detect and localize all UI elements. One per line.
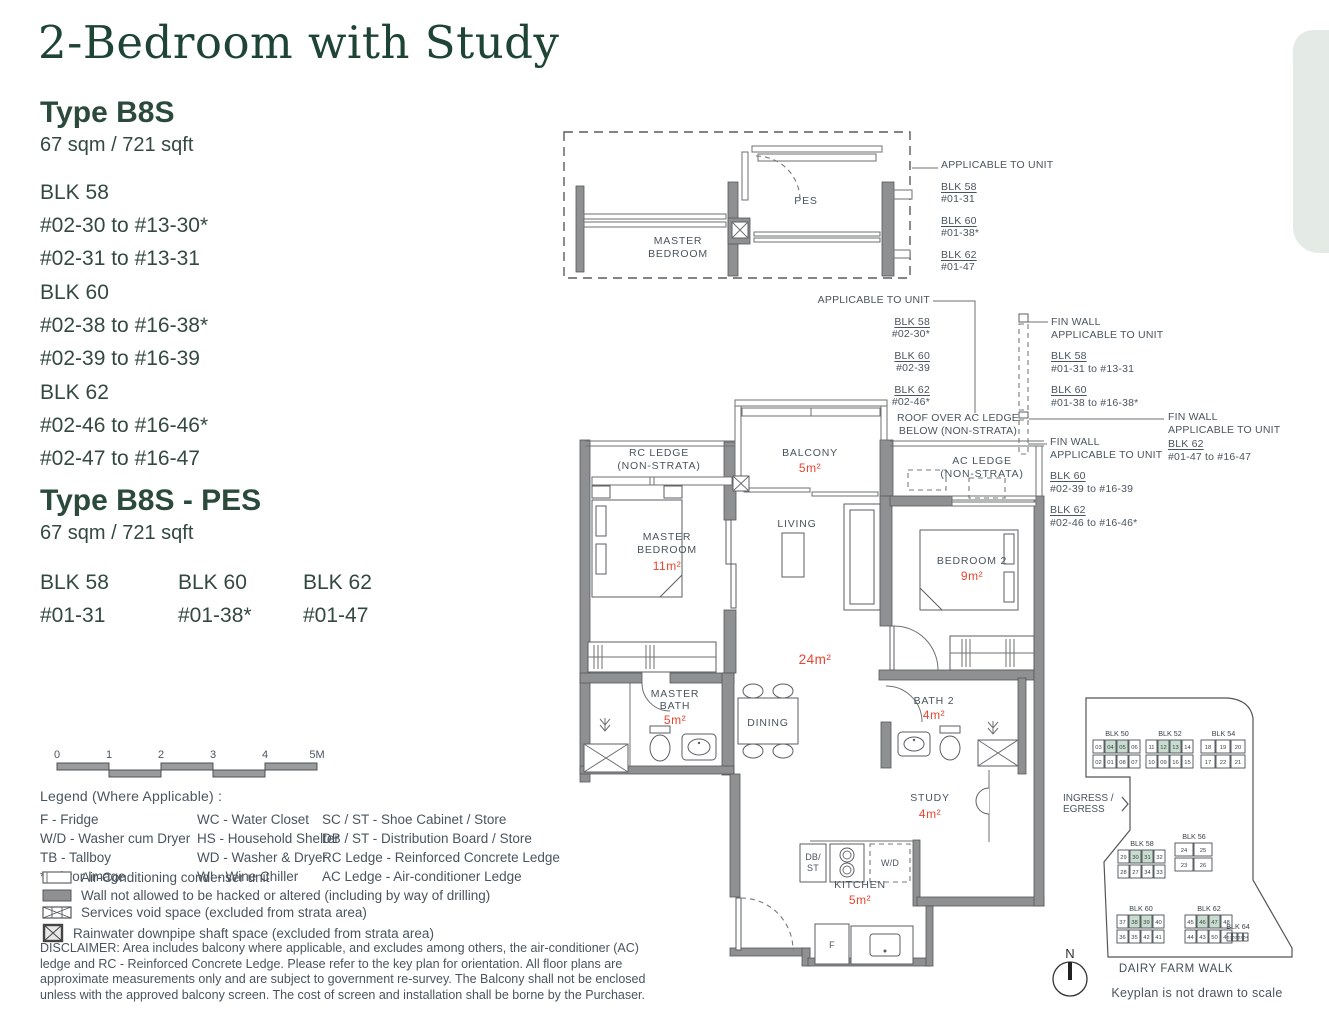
keyplan-unit-number: 20 (1235, 745, 1241, 751)
keyplan-unit-number: 14 (1184, 745, 1191, 751)
keyplan-unit-number: 34 (1144, 870, 1151, 876)
annotation-subtitle: APPLICABLE TO UNIT (1168, 424, 1280, 437)
keyplan-unit-number: 17 (1205, 760, 1211, 766)
rc-ledge-label: RC LEDGE (629, 447, 689, 459)
scale-tick: 0 (54, 749, 60, 761)
toilet-icon (650, 726, 670, 761)
keyplan-unit-number: 25 (1200, 848, 1206, 854)
keyplan-unit-number: 07 (1131, 760, 1137, 766)
keyplan-unit-number: 36 (1119, 935, 1125, 941)
pes-label: PES (794, 195, 817, 207)
legend-item: RC Ledge - Reinforced Concrete Ledge (322, 848, 560, 867)
door-swing-arc (894, 626, 938, 670)
toilet-icon (940, 726, 960, 760)
db-st-label: DB/ (805, 852, 821, 862)
keyplan-unit-number: 12 (1160, 745, 1166, 751)
keyplan: BLK 500304050602010807BLK 52111213141009… (1053, 698, 1292, 1000)
scale-bar: 0 1 2 3 4 5M (54, 749, 325, 777)
keyplan-unit-number: 30 (1132, 855, 1138, 861)
keyplan-blocks: BLK 500304050602010807BLK 52111213141009… (1093, 729, 1250, 943)
annotation-unit: #02-39 (790, 362, 930, 375)
keyplan-unit-number: 50 (1211, 935, 1217, 941)
keyplan-unit-number: 52 (1233, 935, 1237, 939)
sink-icon (851, 926, 913, 964)
annotation-blk: BLK 58 (1051, 350, 1163, 363)
study-fixtures (976, 770, 989, 842)
roof-over-line: ROOF OVER AC LEDGE (896, 412, 1020, 425)
legend-item: SC / ST - Shoe Cabinet / Store (322, 810, 560, 829)
keyplan-unit-number: 01 (1107, 760, 1113, 766)
master-bath-area: 5m² (664, 713, 686, 727)
dining-label: DINING (747, 717, 789, 729)
annotation-unit: #01-38* (941, 227, 1053, 240)
keyplan-unit-number: 16 (1172, 760, 1178, 766)
roof-over-line: BELOW (NON-STRATA) (896, 425, 1020, 438)
annotation-unit: #02-39 to #16-39 (1050, 483, 1162, 496)
entry-door-leaf (736, 898, 741, 950)
legend-item: HS - Household Shelter (197, 829, 339, 848)
keyplan-block-label: BLK 60 (1129, 904, 1153, 913)
annotation-unit: #01-31 to #13-31 (1051, 363, 1163, 376)
pes-master-bedroom-label: MASTER (654, 235, 703, 247)
bedroom2-wardrobe (950, 636, 1034, 670)
fin-wall-symbol (1019, 314, 1028, 454)
keyplan-unit-number: 43 (1199, 935, 1205, 941)
keyplan-unit-number: 41 (1155, 935, 1161, 941)
services-void-symbol-icon (42, 906, 72, 919)
keyplan-unit-number: 15 (1184, 760, 1190, 766)
keyplan-block-label: BLK 64 (1226, 922, 1250, 931)
sliding-door (726, 520, 731, 564)
annotation-blk: BLK 62 (1168, 438, 1280, 451)
street-label: DAIRY FARM WALK (1119, 963, 1233, 975)
annotation-unit: #02-30* (790, 328, 930, 341)
annotation-subtitle: APPLICABLE TO UNIT (1050, 449, 1162, 462)
annotation-subtitle: APPLICABLE TO UNIT (1051, 329, 1163, 342)
master-bedroom-area: 11m² (653, 559, 681, 573)
keyplan-unit-number: 11 (1148, 745, 1154, 751)
keyplan-unit-number: 32 (1156, 855, 1162, 861)
keyplan-unit-number: 33 (1156, 870, 1162, 876)
keyplan-unit-number: 51 (1227, 935, 1231, 939)
keyplan-unit-number: 18 (1205, 745, 1211, 751)
annotation-unit: #01-38 to #16-38* (1051, 397, 1163, 410)
legend-symbol-label: Rainwater downpipe shaft space (excluded… (73, 926, 434, 941)
roof-applicable-annotation: APPLICABLE TO UNIT BLK 58 #02-30* BLK 60… (790, 294, 930, 409)
keyplan-unit-number: 54 (1244, 935, 1248, 939)
keyplan-unit-number: 46 (1199, 920, 1205, 926)
rc-ledge-label: (NON-STRATA) (617, 460, 700, 472)
annotation-title: APPLICABLE TO UNIT (941, 159, 1053, 172)
keyplan-unit-number: 44 (1187, 935, 1194, 941)
legend-symbol-row: Services void space (excluded from strat… (42, 905, 367, 920)
entry-door-swing-arc (741, 898, 793, 950)
annotation-title: FIN WALL (1168, 411, 1280, 424)
keyplan-unit-number: 06 (1131, 745, 1137, 751)
keyplan-block-label: BLK 56 (1182, 832, 1206, 841)
study-chair-arc (976, 788, 989, 814)
annotation-unit: #01-47 to #16-47 (1168, 451, 1280, 464)
legend-symbol-label: Wall not allowed to be hacked or altered… (81, 888, 490, 903)
north-label: N (1065, 946, 1074, 961)
ac-condenser-symbol-icon (42, 871, 72, 884)
legend-item: WC - Water Closet (197, 810, 339, 829)
ac-ledge-label: (NON-STRATA) (940, 468, 1023, 480)
basin-icon (682, 734, 716, 760)
keyplan-unit-number: 39 (1143, 920, 1149, 926)
annotation-unit: #01-47 (941, 261, 1053, 274)
bedroom2-label: BEDROOM 2 (937, 555, 1007, 567)
wall-symbol-icon (42, 889, 72, 902)
ac-condenser-icon (969, 478, 1005, 498)
sofa (844, 504, 880, 610)
keyplan-unit-number: 47 (1211, 920, 1217, 926)
master-bedroom-label: BEDROOM (637, 544, 697, 556)
kitchen-area: 5m² (849, 893, 871, 907)
study-label: STUDY (910, 792, 950, 804)
ingress-arrow-icon (1122, 797, 1128, 811)
scale-tick: 3 (210, 749, 216, 761)
rainwater-shaft-symbol-icon (42, 923, 64, 943)
master-wardrobe (588, 642, 716, 672)
keyplan-unit-number: 26 (1200, 863, 1206, 869)
bedroom2-area: 9m² (961, 569, 983, 583)
keyplan-unit-number: 19 (1220, 745, 1226, 751)
fridge-label: F (829, 940, 835, 950)
annotation-blk: BLK 60 (941, 215, 1053, 228)
keyplan-block-label: BLK 62 (1197, 904, 1221, 913)
legend-symbol-label: Air-Conditioning condenser unit (81, 870, 269, 885)
wd-label: W/D (881, 858, 899, 868)
annotation-unit: #02-46 to #16-46* (1050, 517, 1162, 530)
keyplan-unit-number: 31 (1144, 855, 1150, 861)
fin-wall-mid-annotation: FIN WALL APPLICABLE TO UNIT BLK 60 #02-3… (1050, 436, 1162, 529)
legend-symbol-row: Air-Conditioning condenser unit (42, 870, 269, 885)
keyplan-unit-number: 28 (1120, 870, 1126, 876)
keyplan-unit-number: 22 (1220, 760, 1226, 766)
services-void-icon (584, 744, 628, 772)
legend-symbol-label: Services void space (excluded from strat… (81, 905, 367, 920)
scale-tick: 1 (106, 749, 112, 761)
keyplan-unit-number: 27 (1132, 870, 1138, 876)
keyplan-unit-number: 24 (1181, 848, 1188, 854)
balcony-label: BALCONY (782, 447, 838, 459)
ingress-egress: INGRESS / EGRESS (1063, 793, 1128, 815)
keyplan-unit-number: 04 (1107, 745, 1114, 751)
master-bath-label: MASTER (651, 688, 700, 700)
annotation-unit: #01-31 (941, 193, 1053, 206)
keyplan-unit-number: 53 (1238, 935, 1242, 939)
keyplan-block-label: BLK 54 (1212, 729, 1236, 738)
keyplan-unit-number: 10 (1148, 760, 1154, 766)
keyplan-block-label: BLK 52 (1158, 729, 1182, 738)
coffee-table (782, 533, 804, 577)
annotation-blk: BLK 62 (941, 249, 1053, 262)
scale-tick: 2 (158, 749, 164, 761)
keyplan-note: Keyplan is not drawn to scale (1111, 986, 1282, 1000)
keyplan-unit-number: 45 (1187, 920, 1193, 926)
north-arrow-icon: N (1053, 946, 1087, 996)
annotation-blk: BLK 62 (1050, 504, 1162, 517)
legend-item: F - Fridge (40, 810, 190, 829)
hob-icon (830, 844, 864, 882)
keyplan-unit-number: 37 (1119, 920, 1125, 926)
study-area: 4m² (919, 807, 941, 821)
disclaimer-text: DISCLAIMER: Area includes balcony where … (40, 941, 646, 1003)
keyplan-unit-number: 23 (1181, 863, 1187, 869)
master-bath-label: BATH (660, 700, 690, 712)
fin-wall-right-annotation: FIN WALL APPLICABLE TO UNIT BLK 62 #01-4… (1168, 411, 1280, 463)
master-bedroom-label: MASTER (643, 531, 692, 543)
annotation-title: FIN WALL (1051, 316, 1163, 329)
keyplan-unit-number: 02 (1095, 760, 1101, 766)
ingress-label: EGRESS (1063, 804, 1105, 815)
keyplan-unit-number: 05 (1119, 745, 1125, 751)
roof-over-annotation: ROOF OVER AC LEDGE BELOW (NON-STRATA) (896, 412, 1020, 437)
legend-item: TB - Tallboy (40, 848, 190, 867)
scale-tick: 4 (262, 749, 268, 761)
keyplan-unit-number: 40 (1155, 920, 1161, 926)
balcony-area: 5m² (799, 461, 821, 475)
annotation-blk: BLK 62 (790, 384, 930, 397)
basin-icon (898, 732, 930, 756)
keyplan-unit-number: 08 (1119, 760, 1125, 766)
scale-tick: 5M (309, 749, 324, 761)
keyplan-unit-number: 38 (1131, 920, 1137, 926)
services-void-icon (978, 740, 1018, 766)
annotation-blk: BLK 58 (790, 316, 930, 329)
sliding-door (731, 564, 736, 608)
pes-gate-swing-arc (756, 156, 800, 200)
keyplan-block-label: BLK 50 (1105, 729, 1129, 738)
keyplan-unit-number: 13 (1172, 745, 1178, 751)
keyplan-unit-number: 21 (1235, 760, 1241, 766)
kitchen-label: KITCHEN (834, 879, 886, 891)
keyplan-unit-number: 42 (1143, 935, 1149, 941)
keyplan-unit-number: 09 (1160, 760, 1166, 766)
bath2-area: 4m² (923, 708, 945, 722)
ac-ledge-label: AC LEDGE (952, 455, 1012, 467)
legend-item: W/D - Washer cum Dryer (40, 829, 190, 848)
annotation-blk: BLK 60 (1050, 470, 1162, 483)
db-st-label: ST (807, 863, 819, 873)
annotation-title: APPLICABLE TO UNIT (790, 294, 930, 307)
pes-applicable-annotation: APPLICABLE TO UNIT BLK 58 #01-31 BLK 60 … (941, 159, 1053, 274)
legend-title: Legend (Where Applicable) : (40, 788, 222, 804)
legend-item: AC Ledge - Air-conditioner Ledge (322, 867, 560, 886)
annotation-title: FIN WALL (1050, 436, 1162, 449)
legend-symbol-row: Rainwater downpipe shaft space (excluded… (42, 923, 434, 943)
pes-master-bedroom-label: BEDROOM (648, 248, 708, 260)
ingress-label: INGRESS / (1063, 793, 1114, 804)
pes-partial-plan: MASTER BEDROOM PES (564, 132, 912, 278)
living-dining-area: 24m² (799, 652, 832, 667)
main-floor-plan: RC LEDGE (NON-STRATA) BALCONY 5m² AC LED… (580, 400, 1044, 966)
annotation-blk: BLK 60 (790, 350, 930, 363)
rainwater-shaft-icon (733, 476, 749, 491)
rainwater-shaft-icon (732, 222, 748, 238)
floorplan-page: 2-Bedroom with Study Type B8S 67 sqm / 7… (0, 0, 1329, 1032)
legend-column-3: SC / ST - Shoe Cabinet / Store DB / ST -… (322, 810, 560, 886)
shower-drain-icon (988, 721, 998, 734)
legend-symbol-row: Wall not allowed to be hacked or altered… (42, 888, 490, 903)
annotation-blk: BLK 60 (1051, 384, 1163, 397)
legend-item: DB / ST - Distribution Board / Store (322, 829, 560, 848)
living-label: LIVING (777, 518, 816, 530)
keyplan-unit-number: 29 (1120, 855, 1126, 861)
door-leaf (890, 626, 894, 670)
keyplan-unit-number: 03 (1095, 745, 1101, 751)
bath2-label: BATH 2 (914, 695, 955, 707)
shower-drain-icon (600, 718, 610, 731)
legend-item: WD - Washer & Dryer (197, 848, 339, 867)
annotation-unit: #02-46* (790, 396, 930, 409)
keyplan-block-label: BLK 58 (1130, 839, 1154, 848)
fin-wall-top-annotation: FIN WALL APPLICABLE TO UNIT BLK 58 #01-3… (1051, 316, 1163, 409)
annotation-blk: BLK 58 (941, 181, 1053, 194)
keyplan-unit-number: 35 (1131, 935, 1137, 941)
